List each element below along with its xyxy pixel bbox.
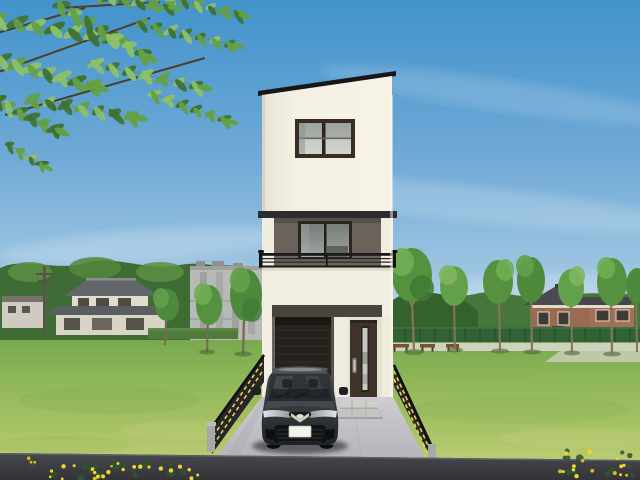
- park-path-branch: [545, 351, 640, 362]
- flower: [619, 473, 622, 476]
- flower-foliage: [133, 473, 138, 478]
- car-emblem: [296, 414, 303, 419]
- flower-foliage: [180, 470, 186, 476]
- first-floor-band: [272, 305, 382, 317]
- far-left-building: [2, 296, 46, 328]
- scene-canvas: [0, 0, 640, 480]
- car-side-mirror-left: [252, 387, 261, 395]
- wall-left-edge: [262, 95, 265, 211]
- flower-foliage: [563, 456, 567, 460]
- mid-band-shadow: [262, 268, 393, 271]
- flower: [50, 469, 53, 472]
- flower: [147, 465, 150, 468]
- flower: [93, 471, 96, 474]
- flower: [121, 468, 124, 471]
- flower: [33, 461, 36, 464]
- flower: [574, 474, 578, 478]
- flower-foliage: [620, 450, 624, 454]
- flower-foliage: [627, 465, 631, 469]
- car-side-mirror-right: [339, 387, 348, 395]
- flower-foliage: [91, 459, 96, 464]
- flower: [61, 464, 65, 468]
- left-hedge: [148, 328, 238, 339]
- flower: [572, 468, 575, 471]
- flower: [622, 464, 625, 467]
- flower: [73, 464, 76, 467]
- mid-band-wall: [262, 268, 393, 309]
- flower: [159, 466, 163, 470]
- flower: [91, 467, 95, 471]
- flower: [590, 469, 594, 473]
- third-floor-window: [295, 119, 355, 158]
- flower-foliage: [122, 462, 127, 467]
- flower: [117, 462, 120, 465]
- car-license-plate: [289, 426, 311, 437]
- flower-foliage: [110, 458, 116, 464]
- flower: [572, 464, 576, 468]
- flower: [110, 465, 113, 468]
- flower-foliage: [132, 470, 136, 474]
- flower: [49, 475, 52, 478]
- flower: [101, 474, 105, 478]
- flower: [178, 465, 182, 469]
- flower: [138, 465, 142, 469]
- flower: [587, 450, 592, 455]
- wall-right-highlight: [390, 95, 393, 400]
- entrance-steps: [337, 400, 383, 419]
- flower-foliage: [565, 468, 572, 475]
- flower: [196, 473, 199, 476]
- fence-post: [207, 424, 215, 452]
- flower: [30, 461, 33, 464]
- car-headrest: [308, 379, 318, 388]
- flower: [616, 458, 619, 461]
- flower-foliage: [630, 473, 635, 478]
- flower: [582, 447, 585, 450]
- flower: [27, 456, 31, 460]
- flower: [132, 465, 136, 469]
- car-headrest: [282, 379, 292, 388]
- flower-foliage: [167, 461, 173, 467]
- rendering-stage: 3D exterior rendering of a narrow three-…: [0, 0, 640, 480]
- flower: [581, 459, 585, 463]
- flower: [613, 471, 617, 475]
- flower: [562, 470, 565, 473]
- flower: [564, 451, 568, 455]
- flower: [169, 468, 173, 472]
- flower: [106, 470, 110, 474]
- front-door: [348, 317, 382, 402]
- flower-foliage: [82, 462, 90, 470]
- park-fence: [393, 327, 640, 342]
- flower: [188, 468, 191, 471]
- floor-eave: [258, 211, 397, 218]
- main-house: [258, 71, 398, 402]
- flower-foliage: [627, 453, 632, 458]
- door-handle: [354, 360, 356, 371]
- flower-foliage: [146, 456, 151, 461]
- flower: [558, 469, 562, 473]
- flower: [625, 474, 628, 477]
- fence-post: [428, 444, 436, 460]
- flower-foliage: [605, 471, 611, 477]
